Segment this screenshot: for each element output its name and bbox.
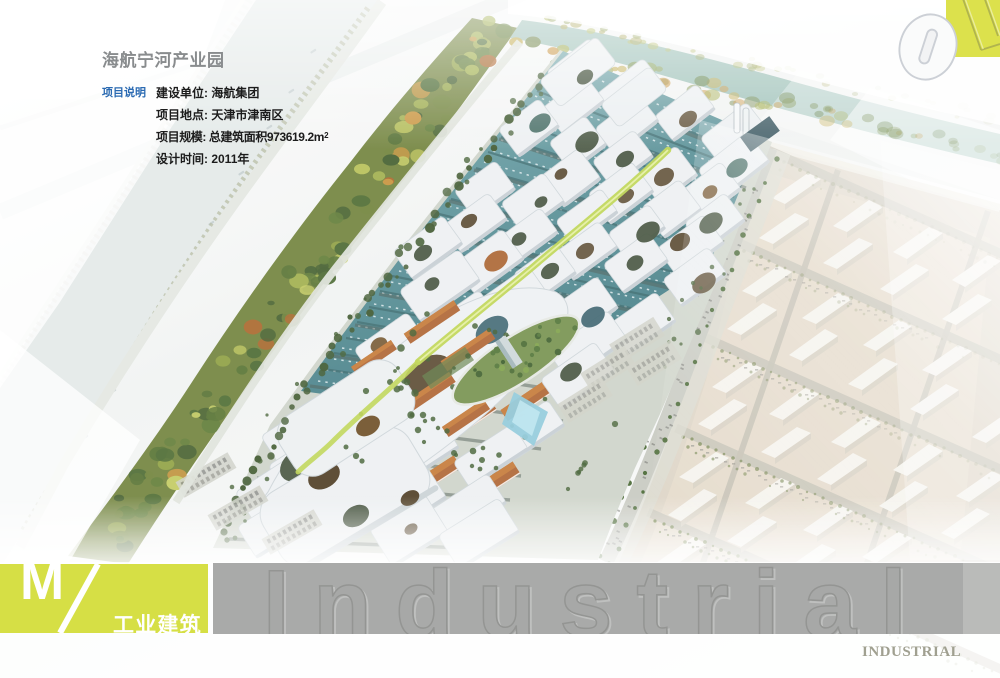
svg-text:Industrial: Industrial	[263, 563, 931, 634]
